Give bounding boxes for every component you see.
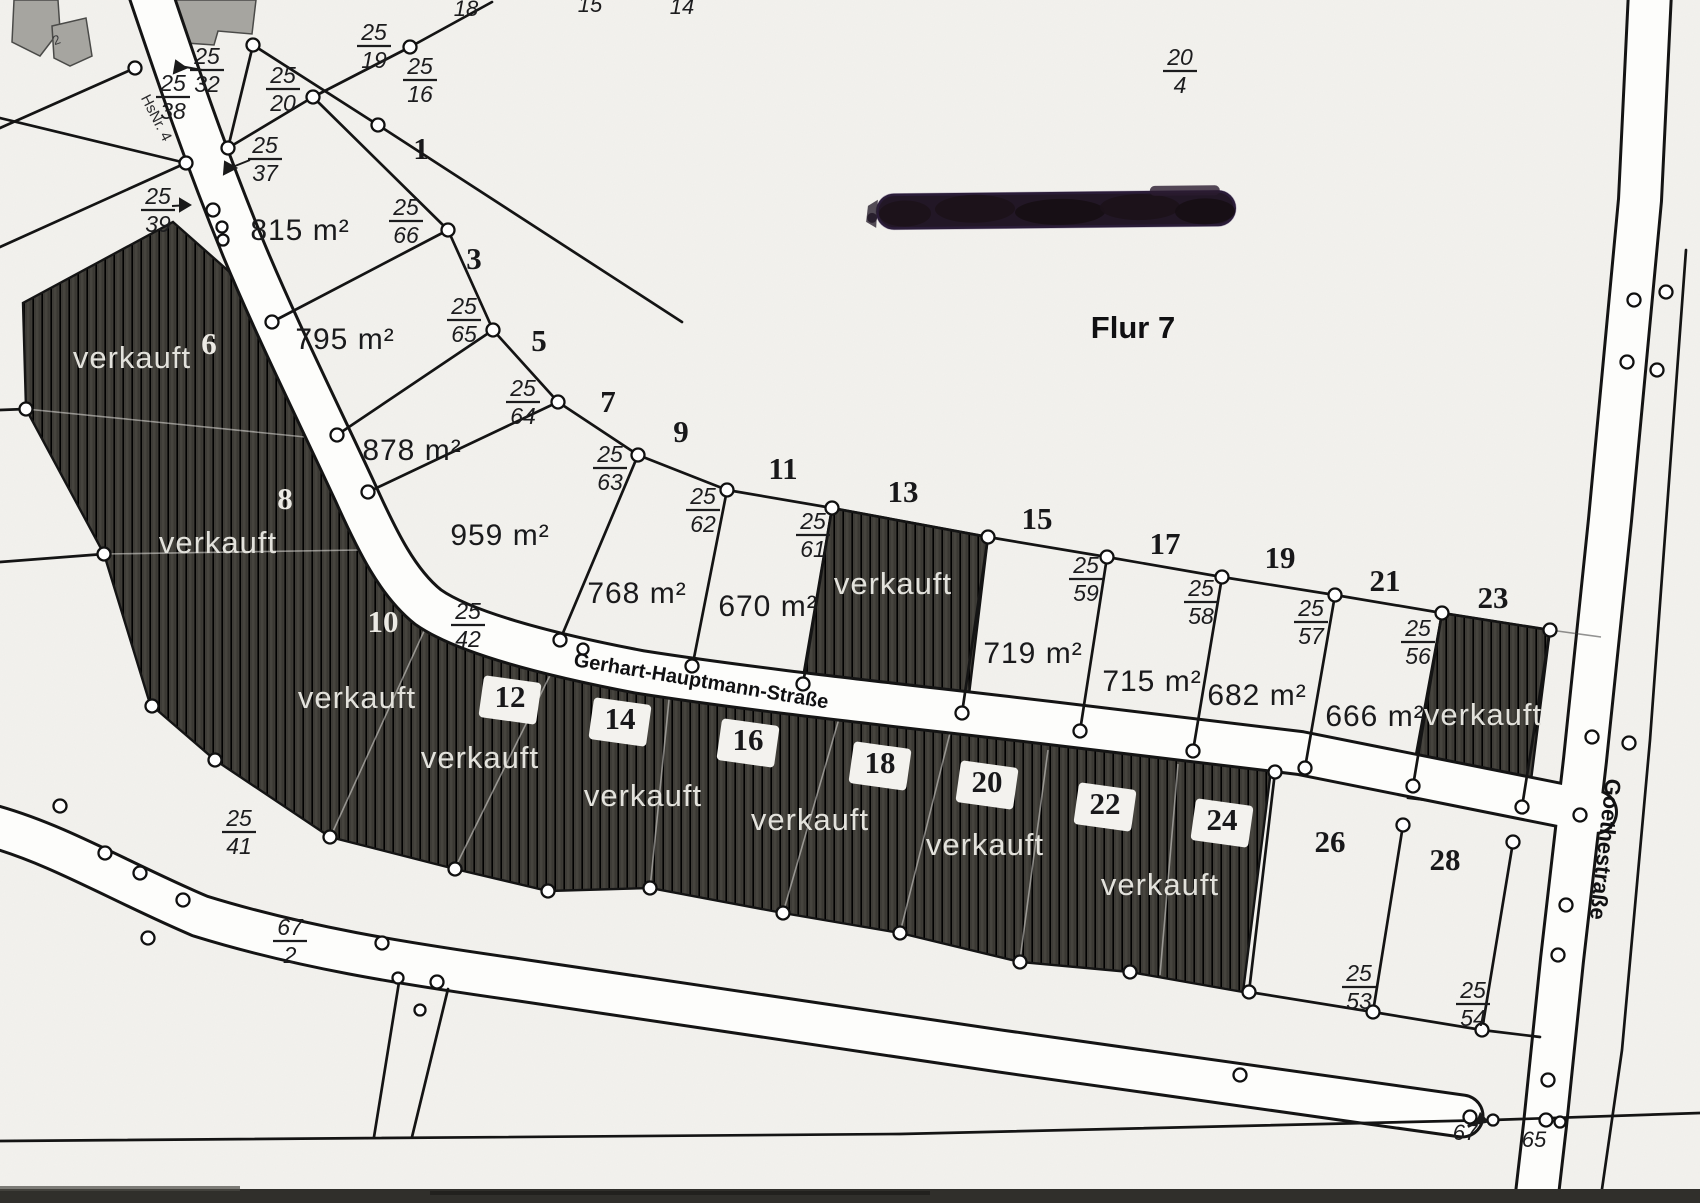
sold-label-14: verkauft — [584, 778, 702, 813]
sold-label-16: verkauft — [751, 802, 869, 837]
svg-text:66: 66 — [393, 222, 419, 248]
plot-number-3: 3 — [466, 241, 482, 276]
plot-number-10: 10 — [368, 604, 399, 639]
svg-text:59: 59 — [1073, 580, 1099, 606]
sold-label-12: verkauft — [421, 740, 539, 775]
svg-text:54: 54 — [1460, 1005, 1486, 1031]
svg-text:20: 20 — [269, 90, 296, 116]
plot-number-26: 26 — [1315, 824, 1346, 859]
fraction-25-39: 2539 — [141, 183, 175, 237]
sold-label-8: verkauft — [159, 525, 277, 560]
plot-number-18: 18 — [865, 745, 896, 780]
area-719: 719 m² — [983, 637, 1082, 670]
plot-number-24: 24 — [1207, 802, 1238, 837]
svg-text:25: 25 — [1404, 615, 1431, 641]
svg-text:25: 25 — [799, 508, 826, 534]
plot-number-6: 6 — [201, 326, 217, 361]
fraction-25-57: 2557 — [1294, 595, 1328, 649]
plot-number-23: 23 — [1478, 580, 1509, 615]
fraction-25-58: 2558 — [1184, 575, 1218, 629]
svg-text:67: 67 — [277, 914, 304, 940]
fraction-25-54: 2554 — [1456, 977, 1490, 1031]
svg-text:19: 19 — [361, 47, 387, 73]
svg-text:25: 25 — [596, 441, 623, 467]
svg-text:25: 25 — [450, 293, 477, 319]
plot-number-5: 5 — [531, 323, 547, 358]
svg-text:65: 65 — [451, 321, 477, 347]
svg-text:25: 25 — [251, 132, 278, 158]
svg-text:25: 25 — [392, 194, 419, 220]
top-edge-number-18: 18 — [454, 0, 479, 21]
plot-number-22: 22 — [1090, 786, 1121, 821]
plot-number-28: 28 — [1430, 842, 1461, 877]
area-878: 878 m² — [362, 434, 461, 467]
area-815: 815 m² — [250, 214, 349, 247]
svg-text:25: 25 — [360, 19, 387, 45]
fraction-25-65: 2565 — [447, 293, 481, 347]
svg-text:16: 16 — [407, 81, 433, 107]
area-715: 715 m² — [1102, 665, 1201, 698]
svg-text:42: 42 — [455, 626, 481, 652]
plot-number-7: 7 — [600, 384, 616, 419]
svg-text:61: 61 — [800, 536, 826, 562]
fraction-25-37: 2537 — [248, 132, 282, 186]
svg-text:56: 56 — [1405, 643, 1431, 669]
plot-number-21: 21 — [1370, 563, 1401, 598]
sold-label-10: verkauft — [298, 680, 416, 715]
svg-text:25: 25 — [225, 805, 252, 831]
fraction-25-32: 2532 — [190, 43, 224, 97]
svg-text:58: 58 — [1188, 603, 1214, 629]
svg-text:25: 25 — [689, 483, 716, 509]
cadastral-map-scan: 1 3 5 7 9 11 13 15 17 19 21 23 6 8 10 12… — [0, 0, 1700, 1203]
fraction-25-41: 2541 — [222, 805, 256, 859]
flur-label: Flur 7 — [1091, 310, 1175, 345]
sold-label-20: verkauft — [926, 827, 1044, 862]
bottom-number-65: 65 — [1522, 1127, 1547, 1152]
top-edge-number-14: 14 — [670, 0, 694, 19]
svg-text:25: 25 — [159, 70, 186, 96]
svg-text:25: 25 — [1072, 552, 1099, 578]
svg-text:25: 25 — [1187, 575, 1214, 601]
plot-number-15: 15 — [1022, 501, 1053, 536]
plot-number-14: 14 — [605, 701, 636, 736]
fraction-25-53: 2553 — [1342, 960, 1376, 1014]
area-666: 666 m² — [1325, 700, 1424, 733]
fraction-25-19: 2519 — [357, 19, 391, 73]
svg-text:25: 25 — [144, 183, 171, 209]
sold-label-23: verkauft — [1424, 697, 1542, 732]
sold-label-24: verkauft — [1101, 867, 1219, 902]
plot-number-8: 8 — [277, 481, 293, 516]
area-670: 670 m² — [718, 590, 817, 623]
plot-number-17: 17 — [1150, 526, 1181, 561]
svg-text:62: 62 — [690, 511, 716, 537]
svg-text:25: 25 — [269, 62, 296, 88]
bottom-number-67: 67 — [1453, 1120, 1478, 1145]
svg-text:25: 25 — [454, 598, 481, 624]
plot-number-9: 9 — [673, 414, 689, 449]
svg-text:32: 32 — [194, 71, 220, 97]
svg-text:20: 20 — [1166, 44, 1193, 70]
fraction-25-42: 2542 — [451, 598, 485, 652]
svg-text:63: 63 — [597, 469, 623, 495]
plot-number-13: 13 — [888, 474, 919, 509]
svg-text:4: 4 — [1174, 72, 1187, 98]
svg-text:25: 25 — [509, 375, 536, 401]
sold-label-6: verkauft — [73, 340, 191, 375]
svg-text:37: 37 — [252, 160, 279, 186]
fraction-25-20: 2520 — [266, 62, 300, 116]
sold-label-13: verkauft — [834, 566, 952, 601]
area-795: 795 m² — [295, 323, 394, 356]
svg-text:25: 25 — [1459, 977, 1486, 1003]
fraction-25-59: 2559 — [1069, 552, 1103, 606]
fraction-25-63: 2563 — [593, 441, 627, 495]
area-959: 959 m² — [450, 519, 549, 552]
fraction-25-61: 2561 — [796, 508, 830, 562]
plot-number-20: 20 — [972, 764, 1003, 799]
plot-number-19: 19 — [1265, 540, 1296, 575]
area-768: 768 m² — [587, 577, 686, 610]
fraction-25-62: 2562 — [686, 483, 720, 537]
fraction-25-16: 2516 — [403, 53, 437, 107]
svg-text:25: 25 — [406, 53, 433, 79]
plot-number-12: 12 — [495, 679, 526, 714]
svg-text:39: 39 — [145, 211, 171, 237]
svg-text:57: 57 — [1298, 623, 1325, 649]
svg-text:53: 53 — [1346, 988, 1372, 1014]
plot-number-16: 16 — [733, 722, 764, 757]
plot-number-11: 11 — [768, 451, 797, 486]
fraction-25-64: 2564 — [506, 375, 540, 429]
svg-text:25: 25 — [193, 43, 220, 69]
area-682: 682 m² — [1207, 679, 1306, 712]
top-edge-number-15: 15 — [578, 0, 603, 17]
svg-text:25: 25 — [1297, 595, 1324, 621]
plot-number-1: 1 — [413, 131, 429, 166]
svg-text:25: 25 — [1345, 960, 1372, 986]
svg-text:41: 41 — [226, 833, 252, 859]
fraction-25-66: 2566 — [389, 194, 423, 248]
svg-text:2: 2 — [283, 942, 297, 968]
fraction-25-56: 2556 — [1401, 615, 1435, 669]
svg-text:64: 64 — [510, 403, 536, 429]
